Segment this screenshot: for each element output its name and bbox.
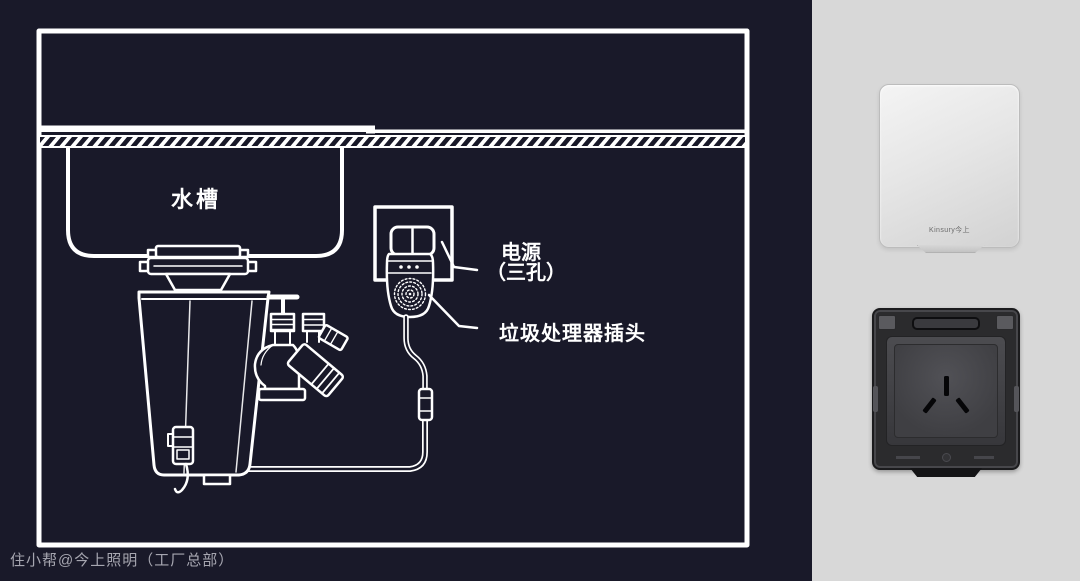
rating-marking-right (974, 456, 994, 459)
socket-face (886, 336, 1006, 446)
diagram-panel: 水槽 电源 （三孔） 垃圾处理器插头 住小帮@今上照明（工厂总部） (0, 0, 812, 581)
plug-label: 垃圾处理器插头 (499, 317, 646, 346)
screenshot: 水槽 电源 （三孔） 垃圾处理器插头 住小帮@今上照明（工厂总部） Kinsur… (0, 0, 1080, 581)
cover-corner-tab-left (878, 315, 896, 330)
side-clip-right (1014, 386, 1019, 412)
brand-logo: Kinsury今上 (880, 225, 1019, 235)
cover-corner-tab-right (996, 315, 1014, 330)
installation-diagram (0, 0, 812, 581)
product-panel: Kinsury今上 (812, 0, 1080, 581)
socket-slot-right (956, 398, 970, 414)
splash-cover-product: Kinsury今上 (879, 84, 1020, 248)
socket-slot-left (922, 398, 936, 414)
power-cord-upper (406, 317, 432, 420)
cover-hinge-slot (912, 317, 980, 330)
sink-label: 水槽 (171, 182, 221, 214)
side-clip-left (873, 386, 878, 412)
rating-marking-left (896, 456, 920, 459)
screw-circle (942, 453, 951, 462)
cover-lip-tab (917, 245, 985, 253)
drain-pipes (255, 297, 348, 400)
black-socket-product (872, 308, 1020, 470)
disposal-unit (139, 292, 269, 484)
disposal-plug-drawing (387, 227, 434, 317)
socket-slot-vertical (944, 376, 949, 396)
socket-module (894, 344, 998, 438)
power-cord-lower (246, 418, 425, 469)
power-label-line2: （三孔） (486, 256, 566, 285)
countertop (40, 126, 745, 149)
watermark-text: 住小帮@今上照明（工厂总部） (10, 549, 234, 570)
disposal-latch (168, 427, 193, 492)
disposal-flange (140, 246, 256, 290)
socket-bottom-tab (910, 468, 982, 477)
plug-leader-line (429, 295, 477, 328)
power-leader-line (442, 242, 477, 270)
